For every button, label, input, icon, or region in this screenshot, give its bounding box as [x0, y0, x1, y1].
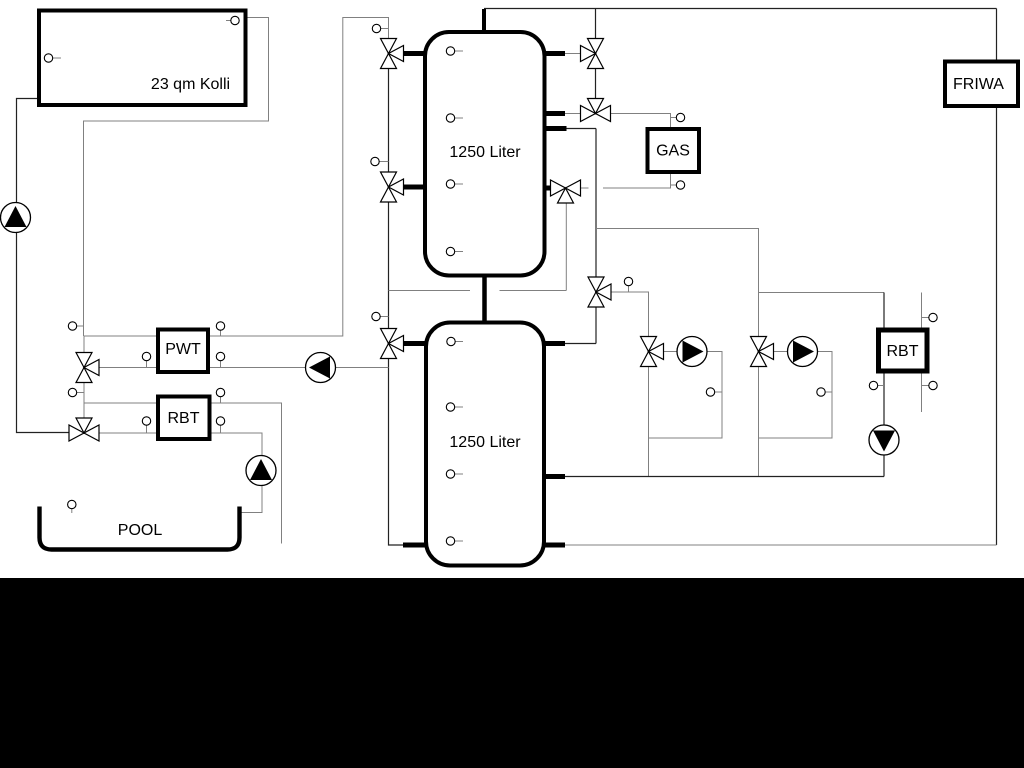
svg-text:FRIWA: FRIWA [953, 76, 1004, 93]
svg-text:1250 Liter: 1250 Liter [449, 144, 521, 161]
svg-text:PWT: PWT [165, 341, 201, 358]
svg-text:RBT: RBT [168, 410, 200, 427]
svg-text:GAS: GAS [656, 143, 690, 160]
svg-text:POOL: POOL [118, 522, 163, 539]
svg-text:RBT: RBT [887, 343, 919, 360]
svg-text:1250 Liter: 1250 Liter [449, 434, 521, 451]
svg-text:23 qm Kolli: 23 qm Kolli [151, 76, 230, 93]
